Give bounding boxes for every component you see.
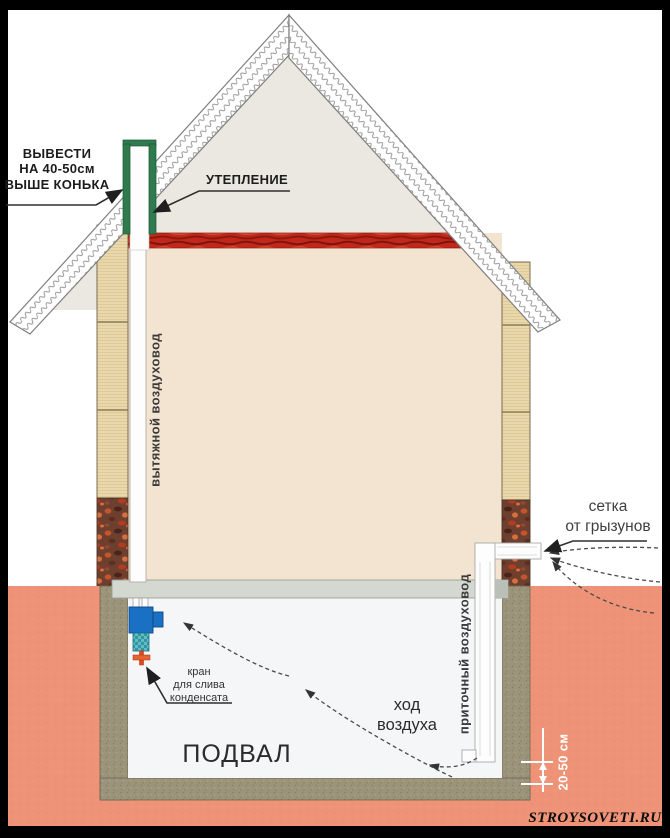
exhaust-stack-insulated [123,140,156,250]
left-wall-blocks [97,225,128,498]
exhaust-duct-label: вытяжной воздуховод [147,333,162,487]
slab-stub [495,580,508,598]
room-interior [128,233,502,583]
insulation-label: УТЕПЛЕНИЕ [206,172,288,187]
valve-label-line1: кран [187,666,210,678]
rodent-screen-line1: сетка [589,498,628,515]
ceiling-slab [112,580,508,598]
clearance-label: 20-50 см [555,734,570,791]
valve-label-line2: для слива [173,679,226,691]
ventilation-diagram: ВЫВЕСТИ НА 40-50см ВЫШЕ КОНЬКА УТЕПЛЕНИЕ… [0,0,670,838]
valve-label-line3: конденсата [170,692,229,704]
exhaust-duct [130,248,146,582]
supply-duct-label: приточный воздуховод [456,574,471,735]
left-wall-plinth [97,498,128,586]
screenshot-root: ВЫВЕСТИ НА 40-50см ВЫШЕ КОНЬКА УТЕПЛЕНИЕ… [0,0,670,838]
air-flow-line1: ход [394,696,421,714]
watermark: STROYSOVETI.RU [528,810,662,826]
basement-label: ПОДВАЛ [182,740,291,768]
attic-insulation-band [98,233,472,248]
ridge-note-line1: ВЫВЕСТИ [23,146,92,161]
ridge-note-line2: НА 40-50см [19,161,94,176]
ridge-note-line3: ВЫШЕ КОНЬКА [5,177,110,192]
air-flow-line2: воздуха [377,716,438,734]
rodent-screen-line2: от грызунов [565,518,650,535]
